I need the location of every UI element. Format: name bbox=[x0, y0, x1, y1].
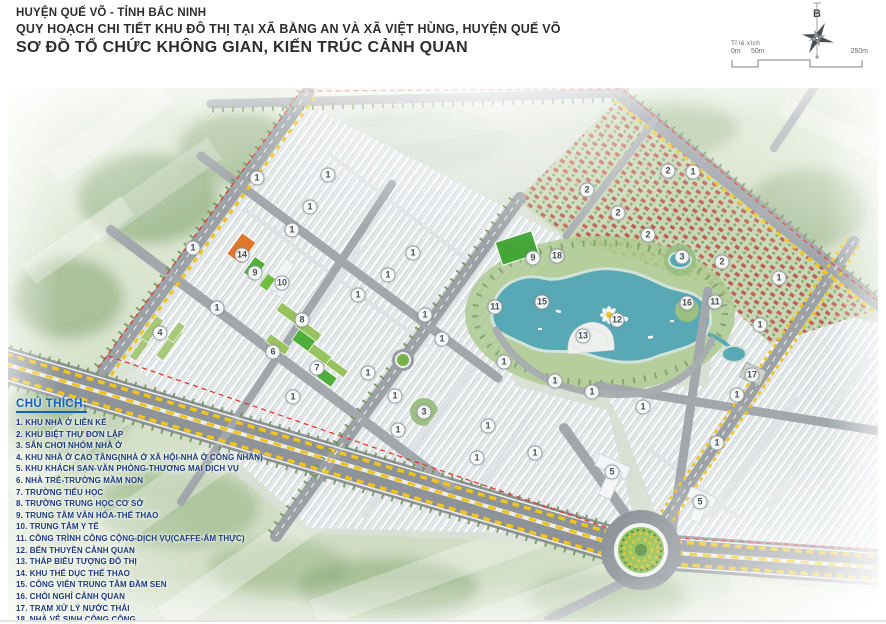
legend-item: 8. TRƯỜNG TRUNG HỌC CƠ SỞ bbox=[16, 498, 254, 510]
map-marker-2: 2 bbox=[580, 183, 595, 198]
map-marker-2: 2 bbox=[611, 206, 626, 221]
legend-item: 4. KHU NHÀ Ở CAO TẦNG(NHÀ Ở XÃ HỘI-NHÀ Ở… bbox=[16, 452, 254, 464]
project-title: QUY HOẠCH CHI TIẾT KHU ĐÔ THỊ TẠI XÃ BẰN… bbox=[16, 22, 561, 36]
drawing-title: SƠ ĐỒ TỔ CHỨC KHÔNG GIAN, KIẾN TRÚC CẢNH… bbox=[16, 39, 561, 57]
map-marker-1: 1 bbox=[210, 301, 225, 316]
scale-tick-50: 50m bbox=[751, 48, 765, 55]
legend-item: 14. KHU THỂ DỤC THỂ THAO bbox=[16, 568, 254, 580]
legend: CHÚ THÍCH: 1. KHU NHÀ Ở LIÊN KẾ2. KHU BI… bbox=[16, 394, 254, 620]
title-block: HUYỆN QUẾ VÕ - TỈNH BẮC NINH QUY HOẠCH C… bbox=[16, 7, 561, 57]
map-marker-1: 1 bbox=[710, 436, 725, 451]
map-marker-1: 1 bbox=[481, 419, 496, 434]
map-marker-1: 1 bbox=[186, 241, 201, 256]
map-marker-1: 1 bbox=[585, 385, 600, 400]
scale-bar: Tỉ lệ xích 0m 50m 250m bbox=[731, 40, 871, 74]
map-marker-1: 1 bbox=[250, 171, 265, 186]
legend-item: 2. KHU BIỆT THỰ ĐƠN LẬP bbox=[16, 429, 254, 441]
map-marker-13: 13 bbox=[576, 329, 591, 344]
map-marker-9: 9 bbox=[526, 251, 541, 266]
legend-item: 12. BẾN THUYỀN CẢNH QUAN bbox=[16, 545, 254, 557]
map-marker-1: 1 bbox=[548, 374, 563, 389]
map-marker-1: 1 bbox=[470, 451, 485, 466]
map-marker-16: 16 bbox=[680, 296, 695, 311]
map-marker-3: 3 bbox=[675, 250, 690, 265]
sheet-bottom-edge bbox=[0, 620, 886, 622]
map-marker-3: 3 bbox=[417, 405, 432, 420]
map-marker-1: 1 bbox=[435, 332, 450, 347]
map-marker-9: 9 bbox=[248, 266, 263, 281]
map-marker-1: 1 bbox=[381, 268, 396, 283]
map-marker-2: 2 bbox=[715, 255, 730, 270]
map-marker-11: 11 bbox=[708, 295, 723, 310]
map-marker-2: 2 bbox=[661, 164, 676, 179]
map-marker-1: 1 bbox=[528, 446, 543, 461]
map-marker-1: 1 bbox=[753, 318, 768, 333]
legend-items: 1. KHU NHÀ Ở LIÊN KẾ2. KHU BIỆT THỰ ĐƠN … bbox=[16, 417, 254, 620]
map-marker-14: 14 bbox=[235, 248, 250, 263]
map-marker-10: 10 bbox=[275, 276, 290, 291]
legend-title: CHÚ THÍCH: bbox=[16, 398, 87, 413]
legend-item: 15. CÔNG VIÊN TRUNG TÂM ĐẦM SEN bbox=[16, 579, 254, 591]
scale-label: Tỉ lệ xích bbox=[731, 40, 871, 47]
legend-item: 6. NHÀ TRẺ-TRƯỜNG MẦM NON bbox=[16, 475, 254, 487]
district-title: HUYỆN QUẾ VÕ - TỈNH BẮC NINH bbox=[16, 7, 561, 19]
scale-tick-labels: 0m 50m 250m bbox=[731, 48, 871, 57]
legend-item: 11. CÔNG TRÌNH CÔNG CỘNG-DỊCH VỤ(CAFFE-Ẩ… bbox=[16, 533, 254, 545]
map-marker-2: 2 bbox=[641, 228, 656, 243]
legend-item: 7. TRƯỜNG TIỂU HỌC bbox=[16, 487, 254, 499]
map-marker-1: 1 bbox=[351, 288, 366, 303]
map-marker-8: 8 bbox=[295, 313, 310, 328]
legend-item: 3. SÂN CHƠI NHÓM NHÀ Ở bbox=[16, 440, 254, 452]
map-marker-1: 1 bbox=[772, 271, 787, 286]
compass-north-label: B bbox=[813, 8, 821, 20]
legend-item: 13. THÁP BIỂU TƯỢNG ĐÔ THỊ bbox=[16, 556, 254, 568]
map-marker-1: 1 bbox=[391, 423, 406, 438]
map-marker-5: 5 bbox=[605, 465, 620, 480]
map-marker-12: 12 bbox=[610, 313, 625, 328]
legend-item: 10. TRUNG TÂM Y TẾ bbox=[16, 521, 254, 533]
map-marker-1: 1 bbox=[636, 400, 651, 415]
map-marker-17: 17 bbox=[745, 368, 760, 383]
plan-sheet: HUYỆN QUẾ VÕ - TỈNH BẮC NINH QUY HOẠCH C… bbox=[0, 0, 886, 624]
scale-tick-0: 0m bbox=[731, 48, 741, 55]
map-marker-4: 4 bbox=[153, 326, 168, 341]
legend-item: 17. TRẠM XỬ LÝ NƯỚC THẢI bbox=[16, 603, 254, 615]
map-marker-1: 1 bbox=[388, 389, 403, 404]
map-marker-1: 1 bbox=[361, 366, 376, 381]
scale-tick-250: 250m bbox=[850, 48, 868, 55]
map-marker-1: 1 bbox=[406, 246, 421, 261]
master-plan-map: 1111111111111111111111111112222233455678… bbox=[8, 88, 878, 620]
map-marker-1: 1 bbox=[286, 390, 301, 405]
map-marker-1: 1 bbox=[285, 223, 300, 238]
map-marker-6: 6 bbox=[266, 345, 281, 360]
legend-item: 5. KHU KHÁCH SẠN-VĂN PHÒNG-THƯƠNG MẠI DỊ… bbox=[16, 463, 254, 475]
map-marker-18: 18 bbox=[550, 249, 565, 264]
map-marker-1: 1 bbox=[303, 200, 318, 215]
map-marker-1: 1 bbox=[497, 355, 512, 370]
map-marker-7: 7 bbox=[310, 361, 325, 376]
map-marker-1: 1 bbox=[418, 308, 433, 323]
map-marker-15: 15 bbox=[535, 295, 550, 310]
legend-item: 9. TRUNG TÂM VĂN HÓA-THỂ THAO bbox=[16, 510, 254, 522]
map-marker-1: 1 bbox=[321, 168, 336, 183]
scale-bar-steps bbox=[731, 57, 865, 70]
legend-item: 1. KHU NHÀ Ở LIÊN KẾ bbox=[16, 417, 254, 429]
map-marker-1: 1 bbox=[730, 388, 745, 403]
map-marker-11: 11 bbox=[488, 300, 503, 315]
map-marker-1: 1 bbox=[686, 165, 701, 180]
map-marker-5: 5 bbox=[693, 495, 708, 510]
legend-item: 16. CHÒI NGHỈ CẢNH QUAN bbox=[16, 591, 254, 603]
